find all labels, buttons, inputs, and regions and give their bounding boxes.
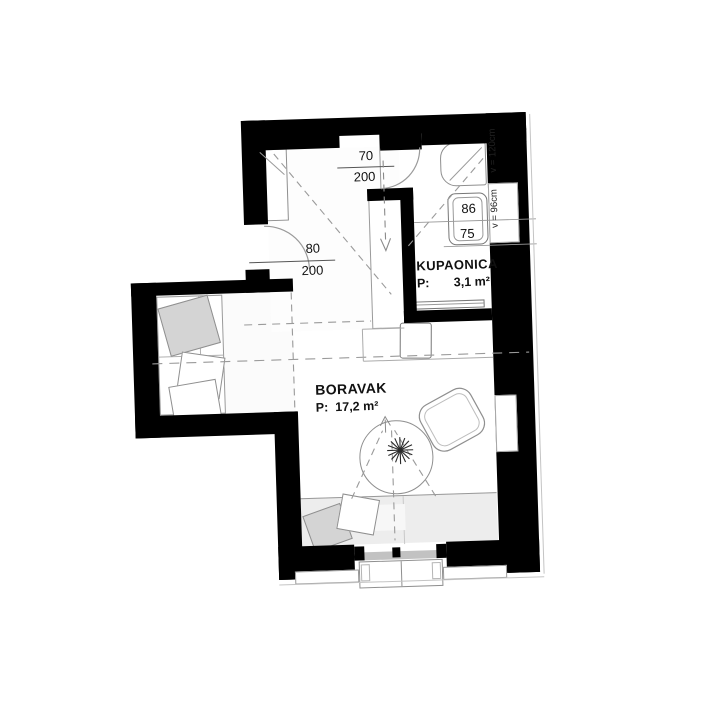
room-label-boravak: BORAVAK (315, 380, 387, 398)
floor-plan: 70 200 80 200 86 75 KUPAONICA P: 3,1 m² … (0, 0, 726, 716)
area-value: 17,2 m² (335, 399, 379, 414)
plan-linework (0, 0, 726, 716)
balcony-jamb-left (354, 546, 364, 560)
area-value: 3,1 m² (454, 274, 491, 289)
room-area-kupaonica: P: 3,1 m² (417, 274, 490, 290)
window-height-label-96: v = 96cm (488, 180, 501, 236)
living-window-niche (494, 394, 518, 452)
side-door-height-label: 200 (288, 262, 336, 279)
armchair-inner (421, 390, 482, 449)
balcony-jamb-right (436, 544, 446, 558)
side-door-width-label: 80 (293, 240, 333, 256)
wall-bath-bottom (404, 308, 492, 323)
window-height-label-120: v = 120cm (486, 122, 499, 178)
sofa-pillow-white (336, 493, 380, 535)
shower-tub (440, 141, 487, 186)
balcony-door-notch-right (432, 562, 442, 579)
basin-width-label: 86 (453, 200, 483, 216)
round-table (358, 419, 434, 495)
threshold-left (295, 570, 359, 585)
entry-niche (368, 200, 404, 329)
entry-door-width-label: 70 (346, 147, 386, 163)
side-chair (400, 323, 432, 359)
room-label-kupaonica: KUPAONICA (416, 256, 498, 274)
balcony-mullion (392, 547, 400, 557)
radiator-center-line (414, 302, 484, 305)
wall-bath-partition-cap (367, 188, 413, 201)
balcony-door-notch-left (361, 564, 371, 581)
entry-door-height-label: 200 (342, 168, 386, 184)
balcony-door-center-line (401, 561, 403, 586)
area-label: P: (316, 400, 329, 414)
balcony-door-frame (359, 559, 444, 589)
counter-line-left (362, 329, 363, 361)
threshold-right (443, 565, 507, 580)
room-area-boravak: P: 17,2 m² (316, 398, 394, 414)
area-label: P: (417, 276, 430, 290)
basin-depth-label: 75 (452, 225, 482, 241)
wall-left-upper (241, 120, 268, 225)
